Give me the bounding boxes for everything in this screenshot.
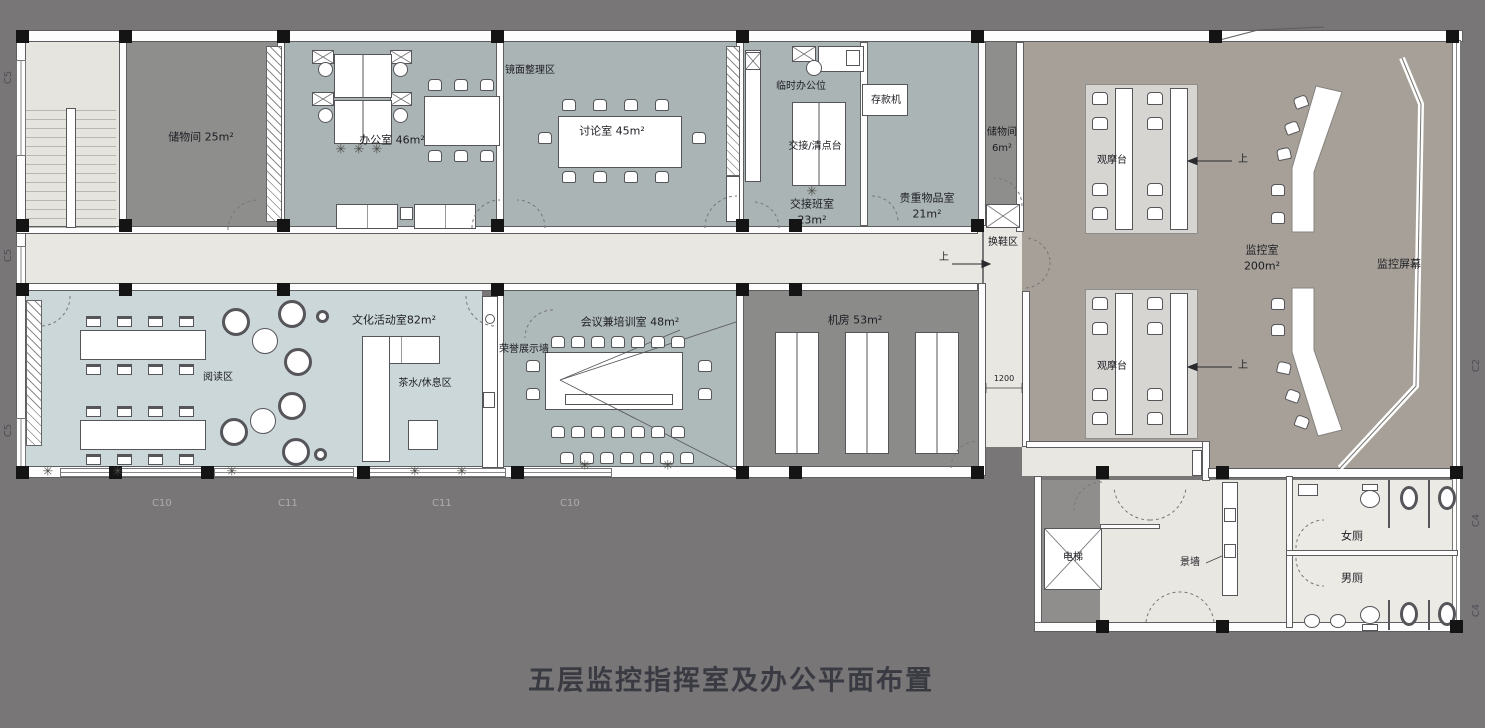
observation-label-2: 观摩台 [1097,361,1127,373]
monitor-room-label: 监控室 [1246,243,1279,256]
left-window-1 [16,60,26,156]
chair [1147,92,1163,105]
chair [538,132,552,144]
chair [631,336,645,348]
round-chair [282,438,310,466]
culture-square-table [408,420,438,450]
window-marker-c10-1: C10 [152,498,172,509]
structural-column [789,283,802,296]
structural-column [1216,620,1229,633]
chair [179,364,194,375]
wc-sink-m1 [1304,614,1320,628]
office-cabinet-strip [266,46,282,222]
server-rack-3 [915,332,959,454]
chair [611,336,625,348]
wc-toilet-w [1360,490,1380,508]
chair [179,454,194,465]
chair [624,99,638,111]
structural-column [119,219,132,232]
structural-column [1216,466,1229,479]
discussion-cabinet-strip [726,46,740,176]
valuables-area-label: 21m² [912,207,941,220]
structural-column [16,30,29,43]
chair [86,316,101,327]
obs-up-label-1: 上 [1238,154,1248,166]
discussion-label: 讨论室 45m² [579,124,645,137]
chair [560,452,574,464]
round-chair [278,300,306,328]
chair [148,454,163,465]
structural-column [491,219,504,232]
wc-toilet-m-tank [1362,624,1378,631]
chair [620,452,634,464]
chair [562,171,576,183]
chair [1092,183,1108,196]
chair [692,132,706,144]
temp-office-label: 临时办公位 [776,81,826,93]
corridor-up-label: 上 [939,252,949,264]
chair [624,171,638,183]
storage-6-area-label: 6m² [992,143,1012,155]
valuables-room-label: 贵重物品室 [900,191,955,204]
plant: ✳ [227,465,238,480]
structural-column [491,30,504,43]
lobby-floor [1100,480,1292,624]
drawing-title: 五层监控指挥室及办公平面布置 [528,659,934,698]
observation-label-1: 观摩台 [1097,155,1127,167]
machine-room-label: 机房 53m² [828,313,883,326]
wc-partition [1428,600,1430,630]
wc-partition [1388,600,1390,630]
chair [671,426,685,438]
plant: ✳ [663,459,674,474]
temp-office-chair [806,60,822,76]
structural-column [119,30,132,43]
chair [179,406,194,417]
plant: ✳ [410,465,421,480]
chair [1092,297,1108,310]
chair [1092,117,1108,130]
monitor-left-wall [1022,291,1030,447]
structural-column [511,466,524,479]
wing-left-wall [1034,476,1042,632]
chair [86,364,101,375]
chair [526,388,540,400]
axis-marker-right-3: C4 [1471,604,1482,617]
structural-column [971,30,984,43]
chair [1092,412,1108,425]
reading-table-2 [80,420,206,450]
chair [1092,92,1108,105]
bottom-window-1 [60,468,208,477]
structural-column [1450,466,1463,479]
chair [1147,207,1163,220]
obs-desk [1170,293,1188,435]
structural-column [1450,620,1463,633]
chair [1092,207,1108,220]
tea-rest-label: 茶水/休息区 [398,378,451,390]
office-sofa-1 [336,204,398,229]
structural-column [1096,620,1109,633]
structural-column [201,466,214,479]
structural-column [357,466,370,479]
office-chair [393,108,408,123]
handover-counter-label: 交接/清点台 [788,141,841,153]
round-chair [284,348,312,376]
wc-toilet-m [1360,606,1380,624]
monitor-corridor-floor [1022,447,1208,476]
structural-column [277,219,290,232]
stair-rail [66,108,76,228]
office-cabinet-4 [390,92,412,106]
wing-top-wall [1208,468,1460,478]
structural-column [16,219,29,232]
chair [480,150,494,162]
feature-wall-sink-1 [1224,508,1236,522]
floor-lamp [314,448,327,461]
structural-column [16,283,29,296]
plant: ✳ [807,185,818,200]
chair [86,454,101,465]
chair [428,150,442,162]
structural-column [16,466,29,479]
chair [1147,297,1163,310]
wc-partition [1428,480,1430,528]
storage-6-floor [984,42,1018,204]
structural-column [789,219,802,232]
chair [117,406,132,417]
chair [551,426,565,438]
window-marker-c11-1: C11 [278,498,298,509]
chair [1276,361,1292,376]
office-side-table [400,207,413,220]
wc-sink-m2 [1330,614,1346,628]
toilet-entry-sink [1298,484,1318,496]
handover-cabinet-top [745,52,761,70]
structural-column [971,466,984,479]
main-corridor-floor [22,232,982,284]
meeting-machine-wall [736,291,744,468]
plant: ✳ [113,465,124,480]
structural-column [971,219,984,232]
chair [1092,322,1108,335]
chair [1147,322,1163,335]
storage-25-label: 储物间 25m² [168,130,234,143]
chair [117,316,132,327]
structural-column [736,283,749,296]
office-cabinet-3 [312,92,334,106]
chair [480,79,494,91]
plant: ✳ [580,459,591,474]
monitor-bottom-wall [1026,441,1208,448]
chair [1147,412,1163,425]
office-label: 办公室 46m² [359,133,425,146]
chair [1271,324,1285,336]
chair [1147,388,1163,401]
round-chair [222,308,250,336]
chair [86,406,101,417]
office-chair [318,62,333,77]
structural-column [736,466,749,479]
plant: ✳ [43,465,54,480]
chair [671,336,685,348]
reading-area-label: 阅读区 [203,372,233,384]
chair [526,360,540,372]
chair [179,316,194,327]
server-rack-2 [845,332,889,454]
axis-marker-left-3: C5 [3,424,14,437]
honor-wall-label: 荣誉展示墙 [499,344,549,356]
round-chair [220,418,248,446]
temp-office-monitor [846,50,860,66]
deposit-machine-label: 存款机 [871,95,901,107]
chair [591,426,605,438]
chair [454,79,468,91]
obs-desk [1170,88,1188,230]
wc-stall-m1 [1400,602,1418,626]
left-window-2 [16,246,26,288]
round-table-2 [250,408,276,434]
chair [117,454,132,465]
chair [591,336,605,348]
structural-column [736,219,749,232]
chair [651,336,665,348]
axis-marker-left-2: C5 [3,249,14,262]
chair [1147,183,1163,196]
honor-wall-item [485,314,495,324]
monitor-screen-label: 监控屏幕 [1377,257,1421,270]
chair [593,171,607,183]
office-chair [318,108,333,123]
chair [148,364,163,375]
axis-marker-left-1: C5 [3,71,14,84]
meeting-podium [565,394,673,405]
chair [571,336,585,348]
plant: ✳ [354,143,365,158]
server-rack-1 [775,332,819,454]
discussion-cabinet-lower [726,176,740,222]
chair [600,452,614,464]
chair [680,452,694,464]
chair [640,452,654,464]
office-workstation-1 [334,54,392,98]
chair [611,426,625,438]
men-toilet-label: 男厕 [1341,571,1363,584]
obs-up-label-2: 上 [1238,360,1248,372]
bottom-window-3 [366,468,506,477]
honor-wall-item2 [483,392,495,408]
stair-storage-wall [119,42,127,226]
chair [655,171,669,183]
plant: ✳ [457,465,468,480]
office-chair [393,62,408,77]
axis-marker-right-1: C2 [1471,359,1482,372]
meeting-room-label: 会议兼培训室 48m² [581,315,680,328]
chair [148,406,163,417]
culture-bookshelf [26,300,42,446]
feature-wall-label: 景墙 [1180,557,1200,569]
monitor-right-wall [1452,40,1461,476]
chair [551,336,565,348]
wc-stall-w1 [1400,486,1418,510]
wc-toilet-w-tank [1362,484,1378,491]
monitor-room-area-label: 200m² [1244,259,1280,272]
round-table-1 [252,328,278,354]
chair [593,99,607,111]
structural-column [119,283,132,296]
reading-table-1 [80,330,206,360]
bottom-window-4 [520,468,612,477]
chair [1271,212,1285,224]
chair [631,426,645,438]
chair [454,150,468,162]
wc-partition [1388,480,1390,528]
storage-6-label: 储物间 [987,127,1017,139]
window-marker-c11-2: C11 [432,498,452,509]
chair [1271,184,1285,196]
chair [571,426,585,438]
shoe-mat [986,204,1020,228]
corridor-end-panel [1192,450,1202,476]
chair [148,316,163,327]
structural-column [789,466,802,479]
shoe-change-label: 换鞋区 [988,237,1018,249]
valuables-storage6-wall [978,42,986,226]
chair [1092,388,1108,401]
chair [428,79,442,91]
office-meeting-table [424,96,500,146]
feature-wall-sink-2 [1224,544,1236,558]
chair [651,426,665,438]
chair [562,99,576,111]
lobby-vestibule-wall [1100,524,1160,529]
culture-sofa-left [362,336,390,462]
elevator-label: 电梯 [1063,552,1083,564]
round-chair [278,392,306,420]
chair [117,364,132,375]
plant: ✳ [372,143,383,158]
structural-column [736,30,749,43]
chair [1147,117,1163,130]
chair [655,99,669,111]
toilet-divider-wall [1286,550,1458,556]
mirror-area-label: 镜面整理区 [505,65,555,77]
chair [1271,298,1285,310]
structural-column [1096,466,1109,479]
axis-marker-right-2: C4 [1471,514,1482,527]
feature-wall-strip [1222,482,1238,596]
chair [698,360,712,372]
plant: ✳ [336,143,347,158]
floor-lamp [316,310,329,323]
dim-1200-label: 1200 [994,374,1014,384]
structural-column [491,283,504,296]
chair [698,388,712,400]
office-sofa-2 [414,204,476,229]
structural-column [1446,30,1459,43]
women-toilet-label: 女厕 [1341,529,1363,542]
structural-column [277,283,290,296]
structural-column [277,30,290,43]
culture-room-label: 文化活动室82m² [352,313,436,326]
floor-plan: 储物间 25m² 办公室 46m² 镜面整理区 讨论室 45m² 临时办公位 存… [0,0,1485,728]
machine-corridor-wall [978,283,986,476]
window-marker-c10-2: C10 [560,498,580,509]
wc-stall-w2 [1438,486,1456,510]
structural-column [1209,30,1222,43]
